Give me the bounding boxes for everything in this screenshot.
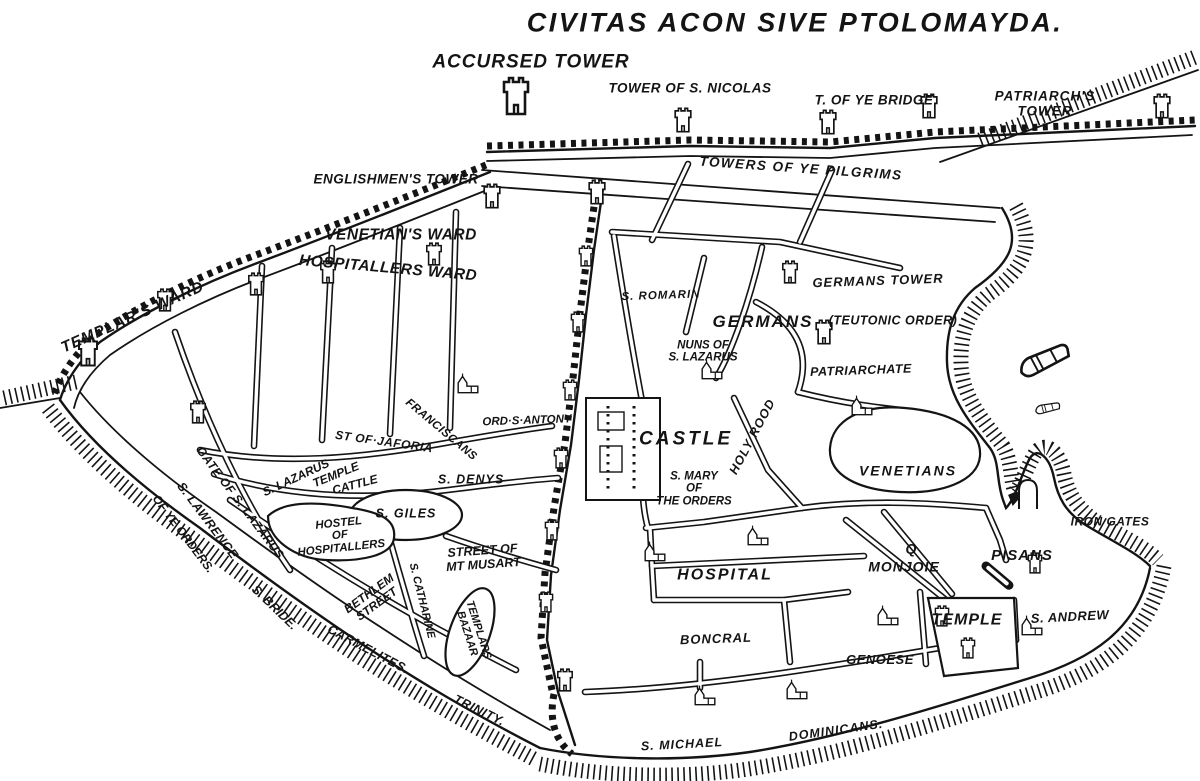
castle-tower-icon (961, 638, 974, 658)
castle-complex (586, 398, 660, 500)
castle-tower-icon (484, 184, 500, 207)
castle-tower-icon (1028, 553, 1041, 573)
church-icon (878, 606, 898, 625)
cannon-icon (986, 566, 1009, 585)
castle-tower-icon (321, 261, 335, 283)
castle-tower-icon (579, 246, 592, 266)
church-icon (458, 374, 478, 393)
castle-tower-icon (820, 110, 836, 133)
castle-tower-icon (249, 273, 263, 295)
castle-tower-icon (539, 592, 552, 612)
castle-tower-icon (191, 401, 205, 423)
galley-ship-icon (1017, 340, 1071, 379)
castle-tower-icon (545, 520, 558, 540)
castle-tower-icon (79, 339, 97, 366)
gate-arch-icon (1019, 480, 1037, 509)
venetians-quarter (830, 407, 980, 492)
castle-tower-icon (563, 380, 576, 400)
galley-ship-icon (1035, 401, 1061, 415)
castle-tower-icon (427, 243, 441, 265)
castle-tower-icon (504, 78, 528, 114)
castle-tower-icon (935, 606, 948, 626)
church-icon (748, 526, 768, 545)
castle-tower-icon (158, 289, 172, 311)
historic-map-acre: CIVITAS ACON SIVE PTOLOMAYDA. ACCURSED T… (0, 0, 1200, 781)
castle-tower-icon (1154, 94, 1170, 117)
map-title: CIVITAS ACON SIVE PTOLOMAYDA. (527, 8, 1064, 39)
castle-tower-icon (571, 312, 584, 332)
church-icon (787, 680, 807, 699)
castle-tower-icon (816, 320, 832, 343)
church-icon (1022, 616, 1042, 635)
map-artwork (0, 0, 1200, 781)
castle-tower-icon (589, 180, 605, 203)
castle-tower-icon (554, 448, 567, 468)
castle-tower-icon (675, 108, 691, 131)
castle-tower-icon (921, 94, 937, 117)
castle-tower-icon (558, 669, 572, 691)
castle-tower-icon (783, 261, 797, 283)
